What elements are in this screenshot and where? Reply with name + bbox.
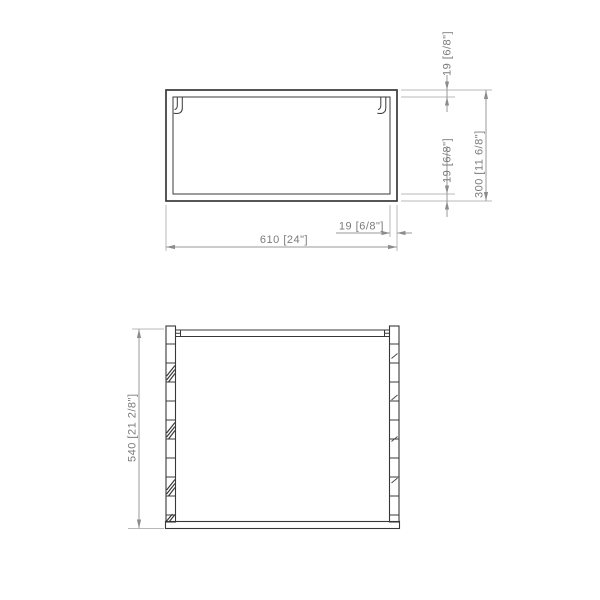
dim-width-label: 610 [24"] bbox=[260, 234, 308, 246]
arrowhead bbox=[397, 231, 406, 235]
technical-drawing: 19 [6/8"] 19 [6/8"] 300 [11 6/8"] 610 [2… bbox=[0, 0, 600, 600]
top-view bbox=[166, 90, 397, 201]
arrowhead bbox=[484, 90, 488, 99]
top-rail-joint-seams bbox=[176, 330, 390, 337]
arrowhead bbox=[445, 186, 449, 195]
right-side-panel bbox=[390, 326, 400, 522]
left-panel-hatch-marks bbox=[167, 366, 175, 523]
arrowhead bbox=[137, 520, 141, 529]
dim-side-thickness-label: 19 [6/8"] bbox=[339, 221, 384, 233]
arrowhead bbox=[137, 329, 141, 338]
bottom-panel bbox=[166, 522, 400, 529]
arrowhead bbox=[166, 245, 175, 249]
dim-height-label: 540 [21 2/8"] bbox=[127, 393, 139, 462]
dim-depth: 300 [11 6/8"] bbox=[474, 90, 489, 201]
dim-side-thickness: 19 [6/8"] bbox=[336, 205, 412, 237]
arrowhead bbox=[445, 201, 449, 210]
arrowhead bbox=[388, 245, 397, 249]
dim-front-thickness-label: 19 [6/8"] bbox=[442, 138, 454, 183]
front-view bbox=[166, 326, 400, 529]
dim-back-thickness-label: 19 [6/8"] bbox=[442, 31, 454, 76]
dim-back-thickness: 19 [6/8"] bbox=[401, 31, 492, 112]
arrowhead bbox=[445, 82, 449, 91]
dim-height: 540 [21 2/8"] bbox=[127, 329, 165, 529]
top-view-outer-outline bbox=[166, 90, 397, 201]
arrowhead bbox=[445, 97, 449, 106]
right-panel-hatch-ticks bbox=[392, 354, 398, 484]
right-panel-segment-lines bbox=[390, 344, 400, 515]
dim-depth-label: 300 [11 6/8"] bbox=[474, 130, 486, 198]
